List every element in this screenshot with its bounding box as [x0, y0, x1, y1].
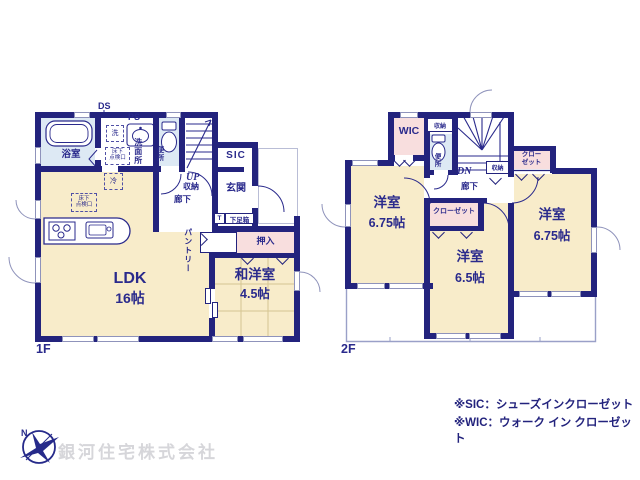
sliding-door-leaf [212, 302, 218, 318]
hatch-line2: 点検口 [109, 156, 126, 162]
floorplan-page: T 下足箱 収納 収納 洗 床下点検口 冷 床下点検口 DS PS 浴室 洗面所… [0, 0, 640, 480]
room-size-washitsu: 4.5帖 [222, 288, 288, 302]
pantry-shelf [200, 232, 237, 253]
window [35, 257, 41, 283]
storage-above-toilet: 収納 [427, 118, 453, 132]
shoebox: 下足箱 [225, 213, 254, 224]
wall [95, 112, 101, 148]
window [243, 336, 283, 342]
room-label-bath: 浴室 [50, 150, 92, 160]
window [519, 291, 548, 297]
floor-hatch-ldk: 床下点検口 [71, 193, 97, 212]
storage-label-1f: 収納 [183, 183, 199, 192]
entrance-porch [259, 149, 298, 224]
fridge-label: 冷 [110, 178, 117, 185]
window [166, 112, 181, 118]
room-label-left: 洋室 [349, 196, 425, 211]
t-box: T [214, 213, 225, 224]
room-label-pantry: パントリー [183, 228, 192, 282]
logo-n-glyph: N [21, 428, 28, 438]
wall [153, 112, 159, 232]
note-wic: ※WIC：ウォーク イン クローゼット [454, 414, 640, 446]
window [62, 336, 94, 342]
window [389, 283, 423, 289]
room-size-ldk: 16帖 [95, 291, 165, 306]
room-size-right: 6.75帖 [514, 230, 590, 244]
door-chevron [489, 172, 502, 185]
stairs-1f [186, 120, 212, 168]
ps-label: PS [128, 113, 140, 123]
window [470, 112, 492, 118]
room-label-mid: 洋室 [432, 250, 508, 265]
window [591, 227, 597, 253]
fridge-box: 冷 [104, 173, 123, 190]
ds-label: DS [98, 102, 111, 112]
wall [35, 112, 218, 118]
wall [218, 167, 244, 172]
window [294, 271, 300, 291]
company-name: 銀河住宅株式会社 [58, 438, 218, 463]
window [97, 336, 139, 342]
storage-top-label: 収納 [434, 121, 446, 130]
sliding-door-leaf [205, 288, 211, 304]
floor-label-1f: 1F [36, 343, 51, 357]
floor-hatch-washroom: 床下点検口 [105, 147, 130, 165]
wall [35, 166, 102, 172]
room-label-ldk: LDK [95, 270, 165, 288]
room-label-right: 洋室 [514, 208, 590, 223]
hatch-line2: 点検口 [76, 203, 93, 209]
window [400, 112, 418, 118]
room-label-toilet-2f: 便所 [433, 153, 440, 177]
hall-label-2f: 廊下 [461, 182, 478, 191]
storage-hall-label: 収納 [491, 163, 503, 172]
closet-label-topright: クローゼット [513, 151, 550, 167]
window [352, 160, 378, 166]
room-label-sic: SIC [218, 150, 254, 161]
window [35, 200, 41, 219]
wall [179, 112, 185, 172]
room-size-left: 6.75帖 [349, 217, 425, 231]
closet-line2: ゼット [522, 159, 542, 166]
company-logo: N [14, 422, 64, 472]
hall-label-1f: 廊下 [174, 195, 191, 204]
window [436, 333, 466, 339]
wall [508, 203, 514, 339]
note-sic: ※SIC：シューズインクローゼット [454, 396, 633, 412]
room-fill [41, 172, 153, 336]
room-label-genkan: 玄関 [218, 183, 254, 194]
room-label-wic: WIC [392, 126, 426, 138]
closet-line1: クロー [522, 151, 542, 158]
window [357, 283, 385, 289]
window [212, 336, 238, 342]
window [74, 112, 90, 118]
wall [252, 142, 258, 186]
room-label-toilet-1f: 便所 [156, 146, 164, 172]
t-label: T [218, 215, 222, 222]
window [35, 147, 41, 164]
room-label-washroom: 洗面所 [133, 138, 142, 174]
laundry-label: 洗 [112, 130, 119, 137]
closet-label-mid: クローゼット [430, 208, 478, 216]
laundry-box: 洗 [106, 125, 124, 142]
room-label-washitsu: 和洋室 [219, 268, 291, 283]
storage-hall-2f: 収納 [486, 161, 509, 174]
shoebox-label: 下足箱 [230, 214, 250, 224]
room-label-oshiire: 押入 [240, 237, 291, 247]
floor-label-2f: 2F [341, 343, 356, 357]
window [551, 291, 581, 297]
window [469, 333, 501, 339]
room-size-mid: 6.5帖 [432, 272, 508, 286]
dn-label: DN [457, 166, 471, 177]
